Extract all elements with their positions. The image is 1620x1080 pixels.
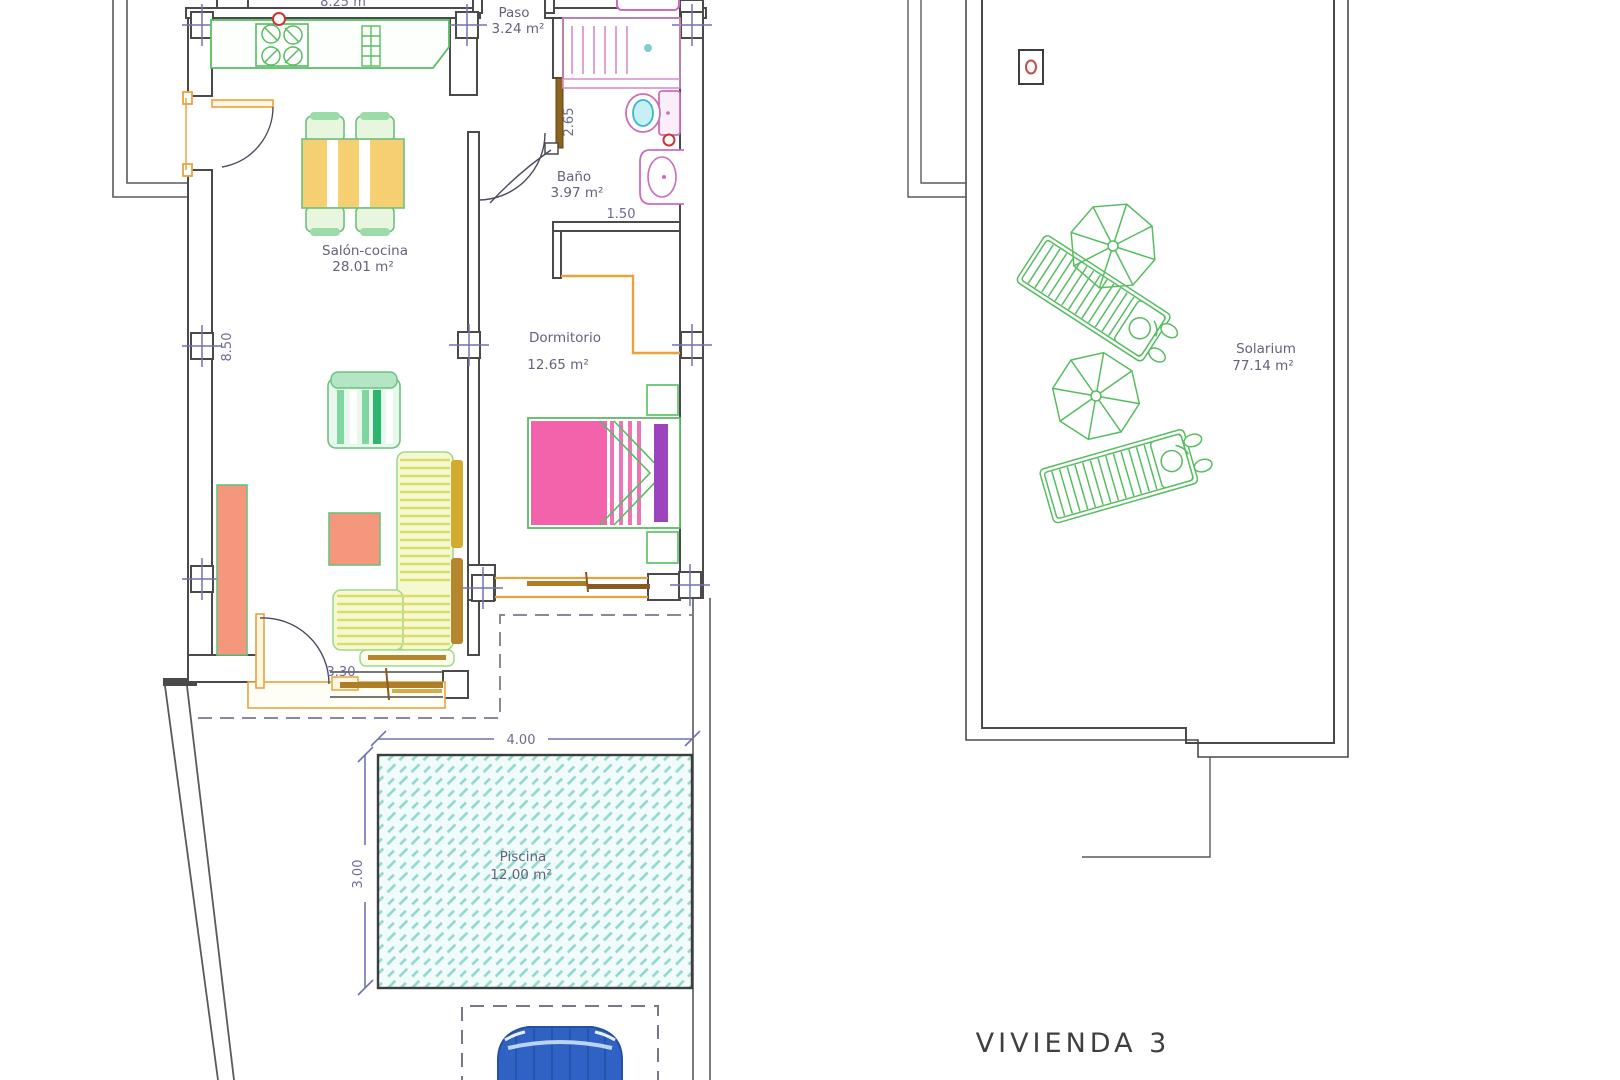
dining-table-icon [302,139,404,208]
bedroom [495,276,680,597]
dim-pool-height: 3.00 [351,860,366,889]
room-area-dormitorio: 12.65 m² [527,357,589,373]
washer-icon [617,0,679,10]
room-label-solarium: Solarium [1236,341,1296,357]
sink-icon [640,150,684,204]
chimney-icon [1019,50,1043,84]
plot-boundary-diagonal [163,678,234,1080]
room-label-salon: Salón-cocina [322,243,408,259]
kitchen-counter [211,13,449,68]
coffee-table-icon [329,513,380,565]
bedroom-window [495,572,650,597]
sun-lounger-icon [1039,424,1216,524]
floor-plan-drawing: 8.25 m Paso 3.24 m² 2.65 Baño 3.97 m² 1.… [0,0,1620,1080]
sun-lounger-icon [1016,234,1187,372]
room-label-bano: Baño [557,169,591,185]
shower-icon [563,18,680,88]
valve-icon [664,135,675,146]
solarium-outline [908,0,1348,857]
floor-plan-canvas: 8.25 m Paso 3.24 m² 2.65 Baño 3.97 m² 1.… [0,0,1620,1080]
dim-salon-height: 8.50 [220,333,235,362]
car-icon [498,1027,622,1080]
kitchen-fixture-icon [273,13,285,25]
dining-set [302,112,404,236]
umbrella-icon [1045,345,1147,447]
dim-top-width: 8.25 m [320,0,366,10]
room-area-paso: 3.24 m² [492,21,545,37]
room-label-paso: Paso [498,5,529,21]
plot-boundary-topleft [113,0,190,197]
room-area-piscina: 12.00 m² [490,867,552,883]
armchair-icon [328,372,400,448]
hall-door [478,133,545,200]
bed-icon [528,418,680,528]
room-area-salon: 28.01 m² [332,259,394,275]
dim-porch-door: 3.30 [327,665,356,680]
sideboard-icon [217,485,247,655]
dim-pool-width: 4.00 [507,733,536,748]
room-label-dormitorio: Dormitorio [529,330,601,346]
plot-boundary-right [693,598,710,1080]
plan-title: VIVIENDA 3 [976,1028,1171,1059]
entry-door [183,92,273,176]
dim-bath-depth: 2.65 [562,108,577,137]
room-area-bano: 3.97 m² [551,185,604,201]
shower-drain-icon [644,44,652,52]
room-label-piscina: Piscina [500,849,547,865]
toilet-icon [626,91,680,135]
room-area-solarium: 77.14 m² [1232,358,1294,374]
dim-bath-width: 1.50 [607,207,636,222]
